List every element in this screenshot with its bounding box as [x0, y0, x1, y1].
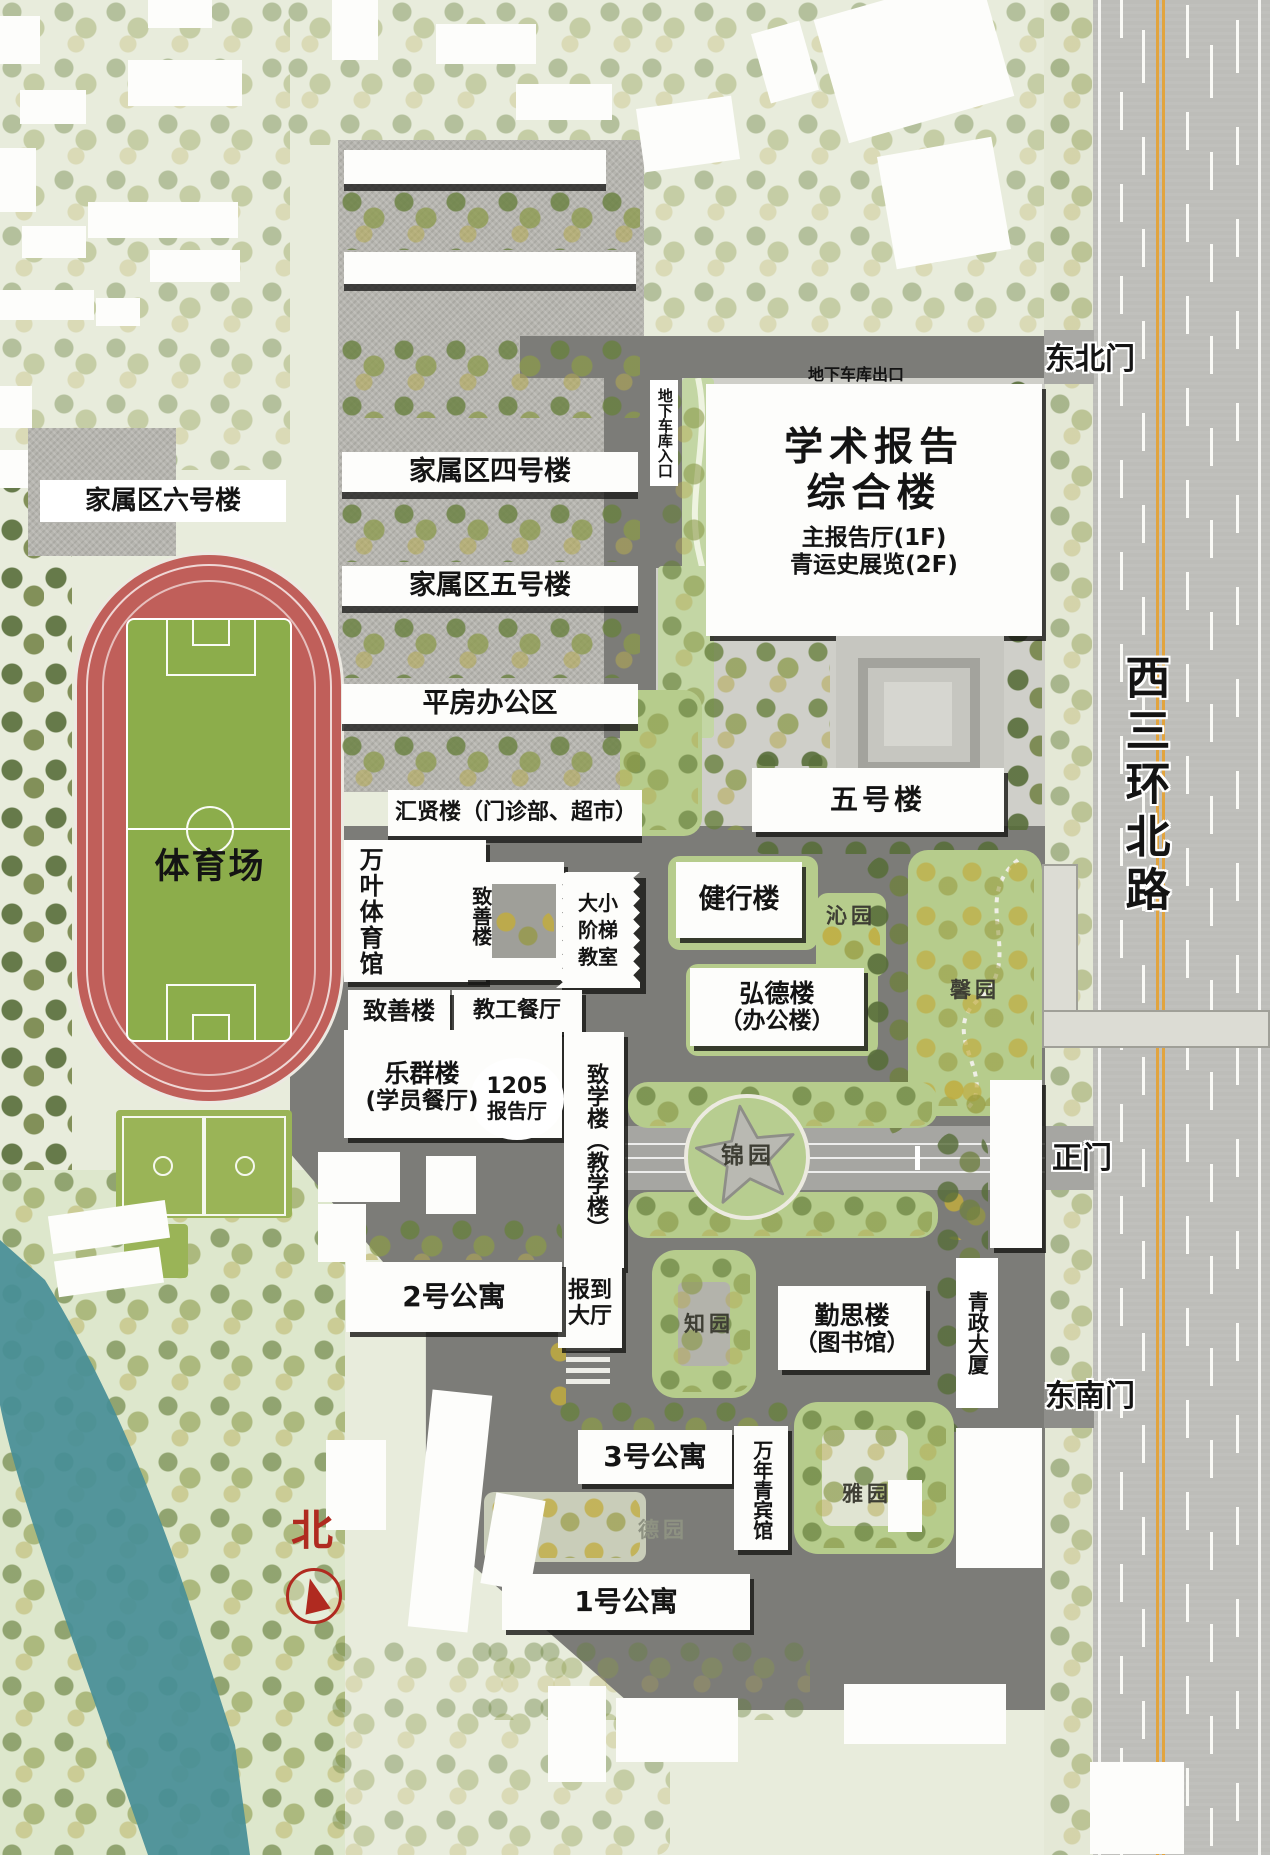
yayuan-trees [800, 1408, 946, 1548]
label-jiaogong: 教工餐厅 [456, 994, 578, 1028]
building [96, 298, 140, 326]
family-trees [340, 338, 640, 418]
label-lequn-line2: (学员餐厅) [365, 1088, 478, 1115]
family-row [344, 150, 606, 184]
label-ladder-rooms: 大小阶梯教室 [574, 884, 622, 976]
court-center-circle [235, 1156, 255, 1176]
building [616, 1698, 738, 1762]
building [877, 137, 1011, 269]
campus-map: 家属区六号楼 家属区四号楼 家属区五号楼 平房办公区 汇贤楼（门诊部、超市） 万… [0, 0, 1270, 1855]
label-zhixue: 致学楼（教学楼） [578, 1040, 612, 1262]
label-qinyuan: 沁园 [818, 902, 884, 930]
label-wanye-gym: 万叶体育馆 [352, 846, 386, 978]
building [332, 0, 378, 60]
court-center-circle [153, 1156, 173, 1176]
label-academic-line3: 主报告厅(1F) [802, 525, 947, 552]
building [128, 60, 242, 106]
building [1090, 1762, 1184, 1854]
label-apt1: 1号公寓 [502, 1574, 750, 1630]
label-apt3: 3号公寓 [578, 1430, 732, 1484]
label-family6: 家属区六号楼 [40, 480, 286, 522]
apt2-hedge [346, 1218, 562, 1260]
family-trees [340, 190, 640, 250]
label-jianxing: 健行楼 [676, 862, 802, 938]
lane-dash [1186, 0, 1189, 1855]
label-garage-exit: 地下车库出口 [802, 364, 910, 386]
courtyard-core [884, 682, 952, 746]
compass-needle-icon [297, 1575, 330, 1614]
label-lequn-line1: 乐群楼 [384, 1059, 459, 1089]
qingzheng-building [990, 1080, 1042, 1248]
label-hall1205-line2: 报告厅 [487, 1100, 547, 1124]
label-apt2: 2号公寓 [346, 1262, 562, 1332]
compass-icon [286, 1568, 342, 1624]
label-xinyuan: 馨园 [942, 976, 1008, 1004]
label-baodao: 报到大厅 [566, 1276, 614, 1332]
label-yayuan: 雅园 [836, 1480, 898, 1508]
building [426, 1156, 476, 1214]
label-wuhao: 五号楼 [752, 768, 1004, 832]
family-trees [340, 616, 640, 678]
building [408, 1390, 493, 1633]
goal-box-bottom [192, 1014, 230, 1040]
building [0, 450, 28, 488]
building [436, 24, 536, 64]
label-hall1205: 1205 报告厅 [470, 1062, 564, 1136]
north-label: 北 [286, 1506, 338, 1556]
label-family4: 家属区四号楼 [342, 452, 638, 492]
footbridge-span [1042, 1010, 1270, 1048]
footbridge-ramp [1042, 864, 1078, 1018]
lane-line [1098, 0, 1101, 1855]
crosswalk [566, 1346, 610, 1384]
building [148, 0, 212, 28]
building [548, 1686, 606, 1782]
family-trees [340, 734, 640, 788]
building [956, 1428, 1042, 1568]
label-academic-line4: 青运史展览(2F) [790, 552, 958, 579]
building [516, 84, 612, 120]
label-hotel: 万年青宾馆 [742, 1434, 780, 1546]
label-qinsi-line2: （图书馆） [795, 1330, 910, 1357]
zhishan-courtyard-trees [494, 910, 554, 956]
forest-west-band [0, 470, 72, 1170]
label-hongde: 弘德楼 （办公楼） [690, 970, 864, 1044]
building [22, 226, 86, 258]
building [0, 16, 40, 64]
label-gate-southeast: 东南门 [1028, 1378, 1152, 1416]
label-qingzheng: 青政大厦 [956, 1258, 998, 1408]
building [88, 202, 238, 238]
building [636, 96, 740, 173]
label-academic-line1: 学术报告 [784, 425, 964, 471]
label-hall1205-line1: 1205 [486, 1074, 547, 1100]
building [318, 1204, 366, 1262]
building [0, 290, 94, 320]
label-gate-northeast: 东北门 [1028, 342, 1152, 378]
lane-dash [1210, 0, 1213, 1855]
label-ring-road: 西三环北路 [1116, 616, 1172, 956]
lane-line [1258, 0, 1261, 1855]
label-zhiyuan: 知园 [678, 1310, 740, 1338]
building [20, 90, 86, 124]
building [0, 148, 36, 212]
avenue-stop-bar [915, 1146, 920, 1170]
label-qinsi-line1: 勤思楼 [814, 1301, 889, 1331]
building [0, 386, 32, 428]
label-zhishan-v: 致善楼 [466, 874, 494, 958]
label-pingfang: 平房办公区 [342, 684, 638, 724]
label-deyuan: 德园 [632, 1516, 694, 1544]
label-qinsi: 勤思楼 （图书馆） [778, 1290, 926, 1368]
crosswalk-trees [548, 1340, 566, 1410]
label-academic-hall: 学术报告 综合楼 主报告厅(1F) 青运史展览(2F) [716, 412, 1032, 592]
label-garage-entry: 地下车库入口 [650, 380, 678, 486]
building [318, 1152, 400, 1202]
label-gate-main: 正门 [1038, 1140, 1126, 1178]
lane-dash [1236, 0, 1239, 1855]
building [150, 250, 240, 282]
building [844, 1684, 1006, 1744]
label-hongde-line1: 弘德楼 [739, 979, 814, 1009]
label-jinyuan: 锦园 [712, 1140, 784, 1174]
label-academic-line2: 综合楼 [806, 471, 941, 517]
label-zhishan: 致善楼 [352, 994, 446, 1028]
label-stadium: 体育场 [142, 844, 278, 892]
goal-box-top [192, 620, 230, 646]
family-trees [340, 502, 640, 562]
label-family5: 家属区五号楼 [342, 566, 638, 606]
family-row [344, 252, 636, 284]
label-hongde-line2: （办公楼） [720, 1008, 835, 1035]
label-huixian: 汇贤楼（门诊部、超市） [390, 792, 642, 834]
